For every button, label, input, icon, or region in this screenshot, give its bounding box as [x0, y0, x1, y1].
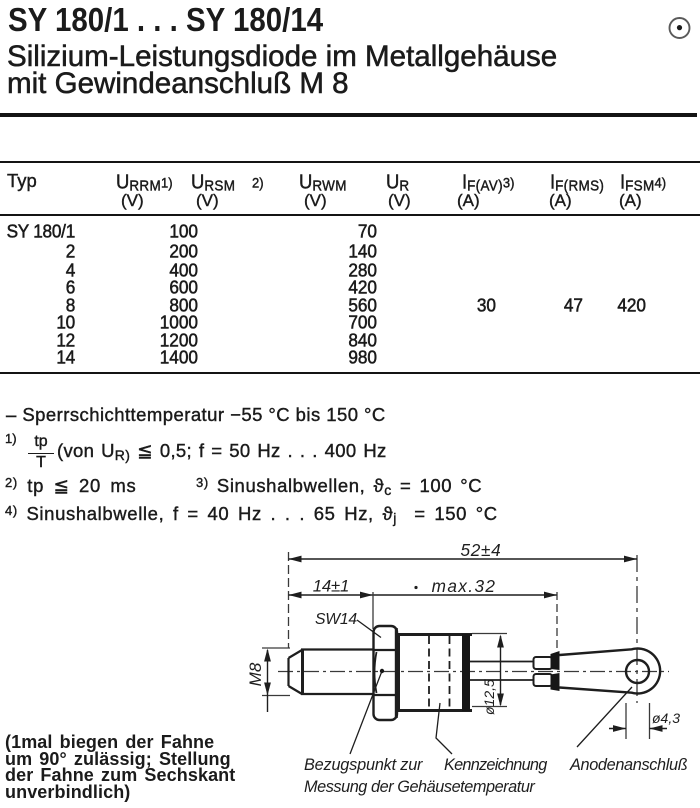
svg-text:Anodenanschluß: Anodenanschluß	[569, 756, 688, 774]
svg-text:max.32: max.32	[432, 576, 497, 596]
svg-text:Bezugspunkt zur: Bezugspunkt zur	[304, 756, 423, 774]
svg-text:14±1: 14±1	[313, 577, 349, 596]
svg-text:Kennzeichnung: Kennzeichnung	[444, 756, 547, 774]
svg-text:SW14: SW14	[315, 611, 357, 628]
svg-text:ø12,5: ø12,5	[481, 679, 497, 715]
svg-text:ø4,3: ø4,3	[652, 710, 680, 726]
svg-text:M8: M8	[246, 662, 265, 686]
svg-text:Messung der Gehäusetemperatur: Messung der Gehäusetemperatur	[304, 778, 535, 796]
svg-text:52±4: 52±4	[461, 540, 502, 560]
